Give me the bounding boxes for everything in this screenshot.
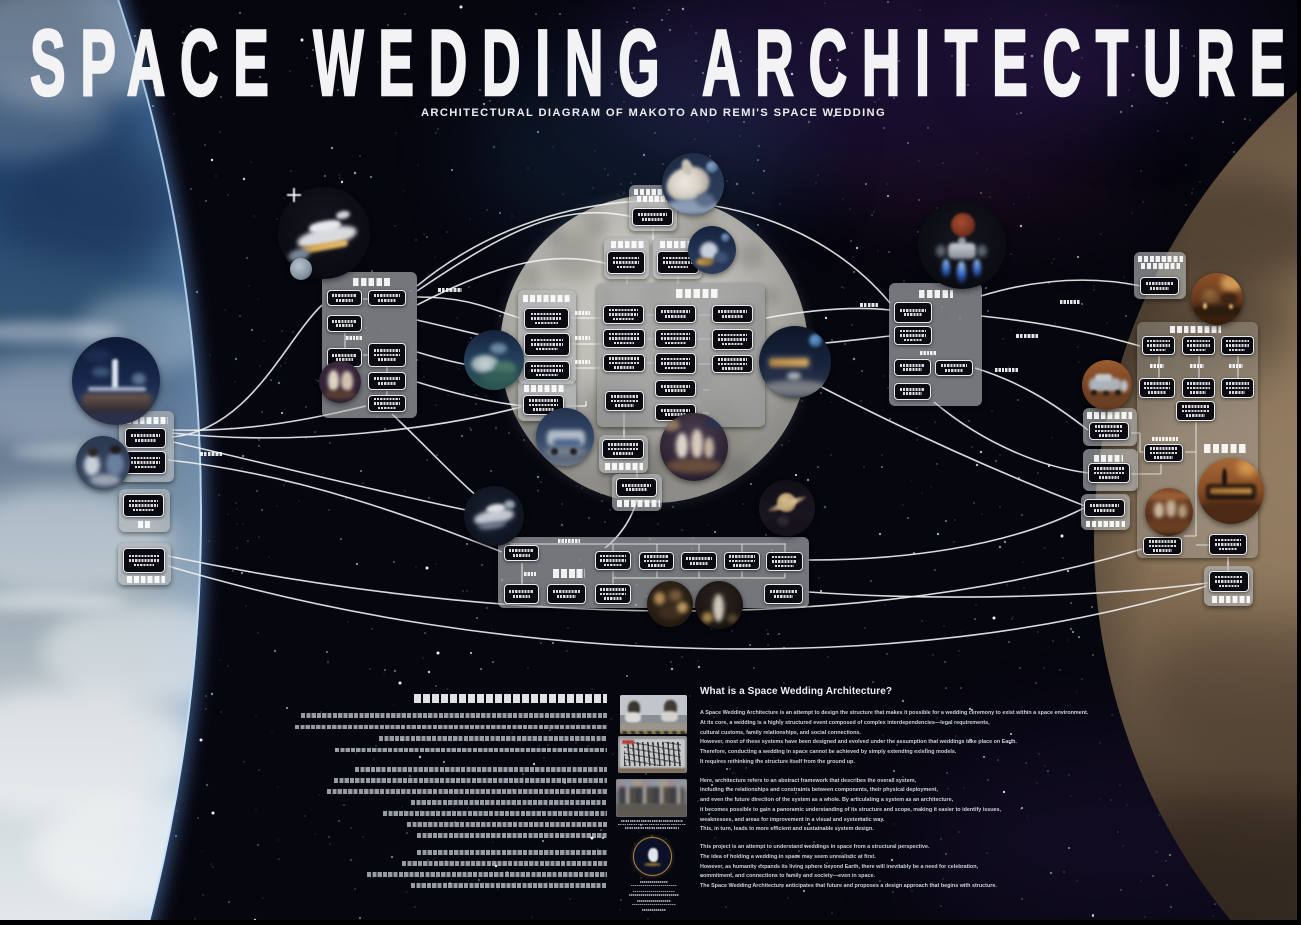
svg-text:SPACE WEDDING ARCHITECTURE: SPACE WEDDING ARCHITECTURE (30, 10, 1300, 115)
